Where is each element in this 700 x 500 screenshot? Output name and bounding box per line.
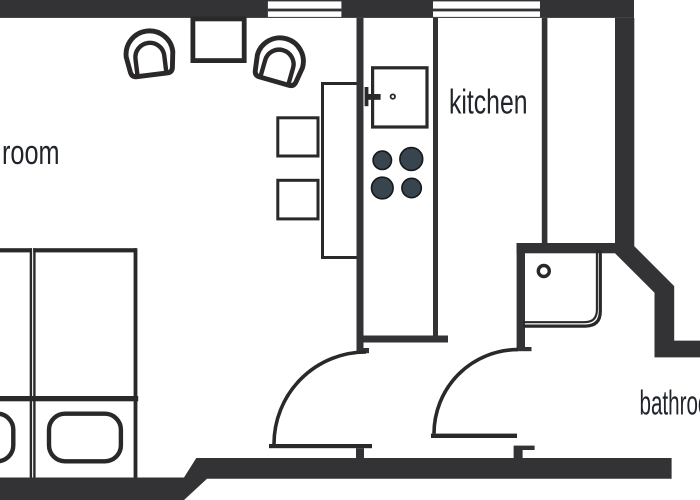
svg-text:room: room bbox=[2, 134, 60, 172]
svg-text:bathroom: bathroom bbox=[640, 385, 700, 423]
svg-text:kitchen: kitchen bbox=[449, 84, 528, 122]
